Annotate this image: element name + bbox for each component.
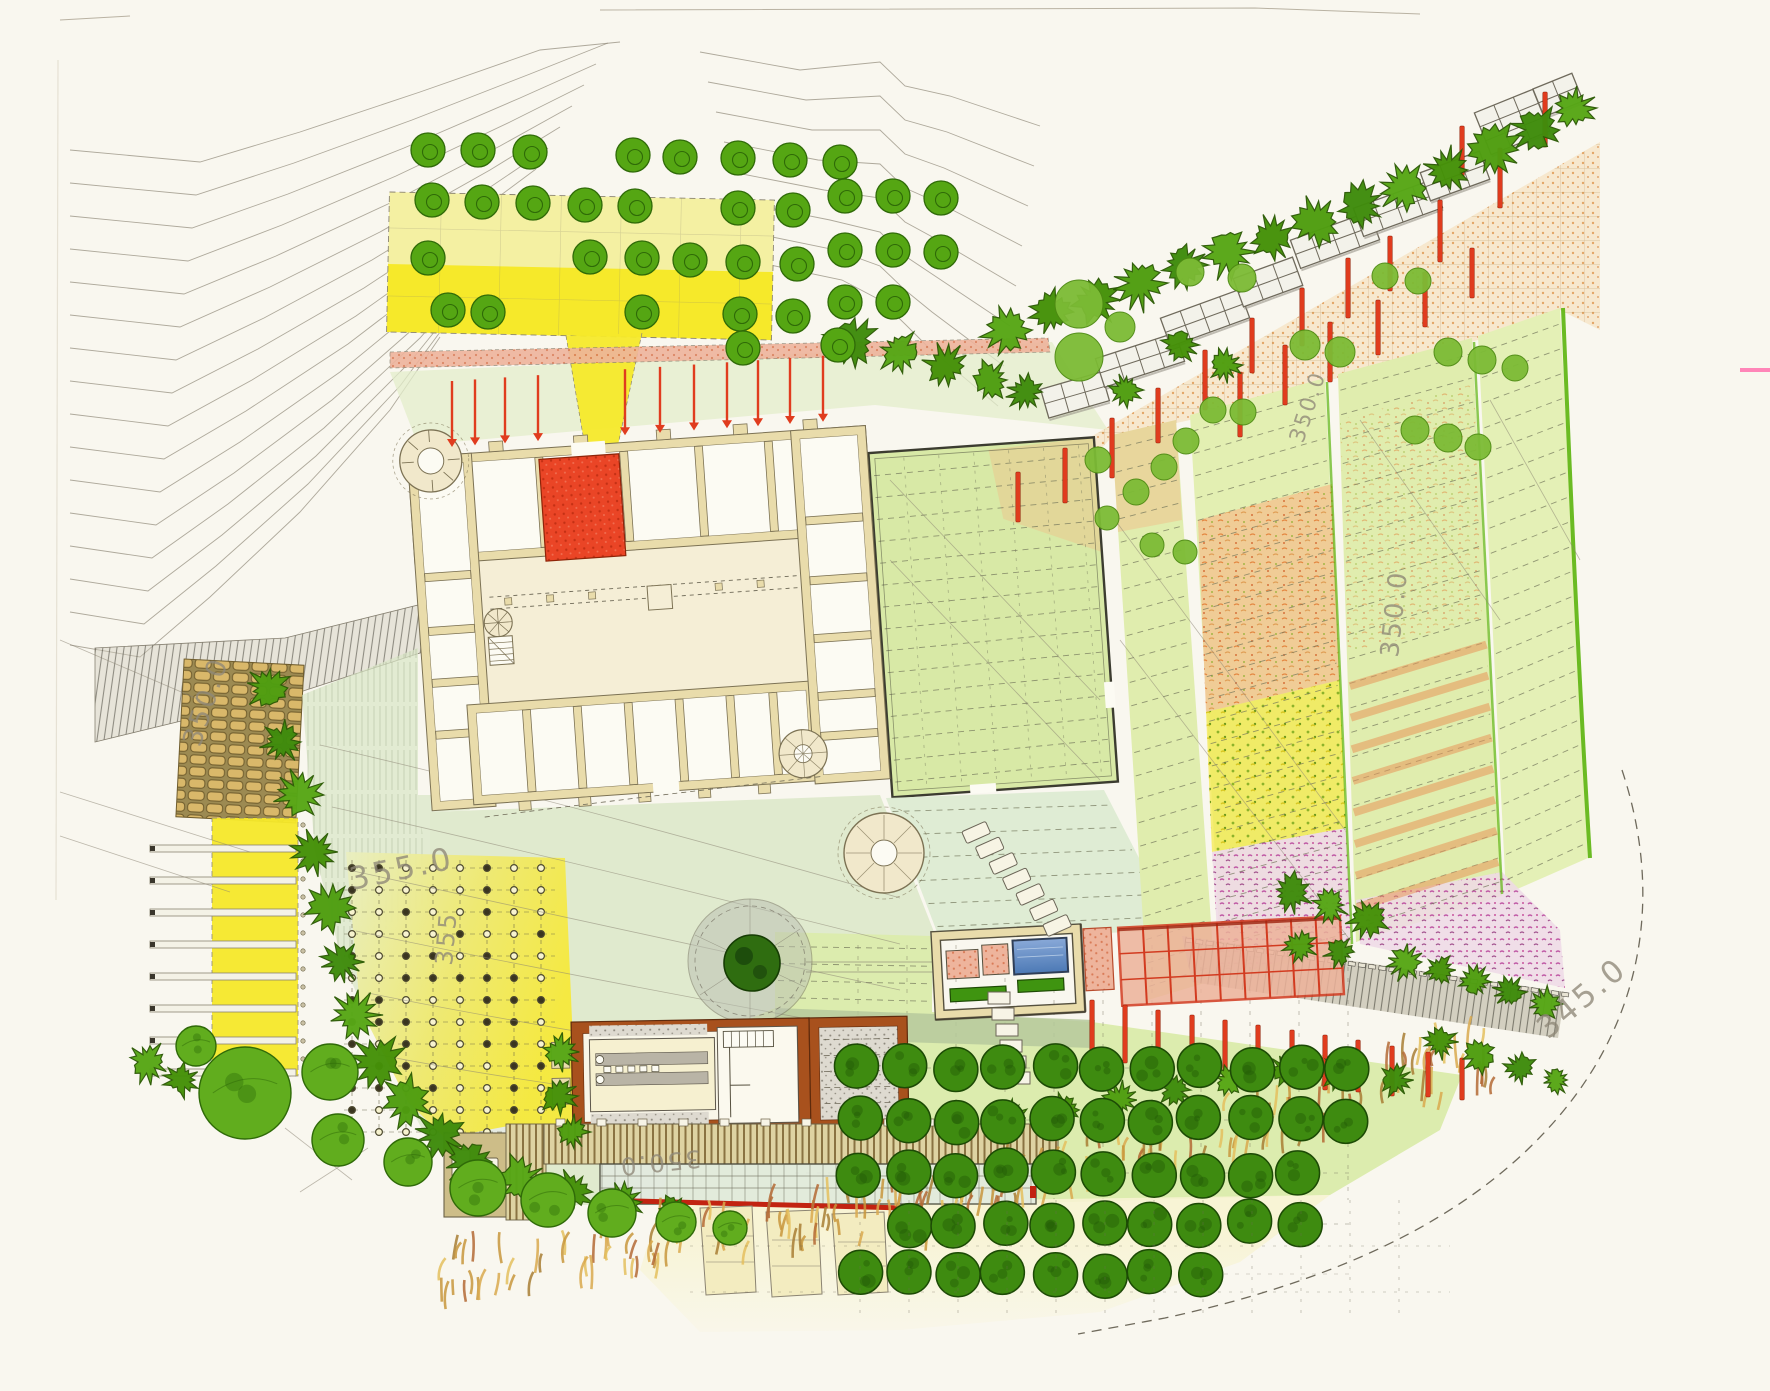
vine [538, 1019, 545, 1026]
vine [511, 1085, 518, 1092]
contour-label: 355 [429, 910, 463, 967]
tree [411, 241, 445, 275]
tree [1325, 1047, 1369, 1091]
vine [484, 865, 491, 872]
tree [821, 328, 855, 362]
tree [828, 179, 862, 213]
tree [471, 295, 505, 329]
tree [981, 1100, 1025, 1144]
tree [883, 1044, 927, 1088]
tree [1031, 1150, 1075, 1194]
vine [511, 865, 518, 872]
tree [1095, 506, 1119, 530]
site-plan-drawing: 350.0 355.0 355 350.0 350.0 345.0 350.0 [0, 0, 1770, 1391]
tree [887, 1150, 931, 1194]
vine [430, 997, 437, 1004]
tree [780, 247, 814, 281]
tree [461, 133, 495, 167]
vine [484, 1063, 491, 1070]
vine [457, 975, 464, 982]
tree [981, 1045, 1025, 1089]
vine [511, 1107, 518, 1114]
tree [1502, 355, 1528, 381]
walled-garden [868, 437, 1121, 799]
vine [430, 1085, 437, 1092]
tree [723, 297, 757, 331]
tree [1176, 258, 1204, 286]
tree [1080, 1098, 1124, 1142]
vine [511, 909, 518, 916]
red-post [1438, 200, 1443, 262]
red-post [1156, 388, 1161, 443]
courtyard-pavilion [647, 584, 673, 610]
tree [726, 245, 760, 279]
tree [1055, 333, 1103, 381]
tree [1173, 428, 1199, 454]
vine [511, 997, 518, 1004]
vine [484, 1041, 491, 1048]
vine [403, 887, 410, 894]
vine [403, 909, 410, 916]
south-gate [653, 780, 680, 794]
vine [484, 997, 491, 1004]
vine [457, 1063, 464, 1070]
tree [1434, 338, 1462, 366]
tree [415, 183, 449, 217]
vine [430, 1041, 437, 1048]
tree [465, 185, 499, 219]
vine [349, 1107, 356, 1114]
vine [403, 953, 410, 960]
vine [457, 1085, 464, 1092]
tree [1229, 1095, 1273, 1139]
tree [721, 141, 755, 175]
vine [376, 909, 383, 916]
vine [484, 975, 491, 982]
tree [1151, 454, 1177, 480]
tree [1178, 1043, 1222, 1087]
tree [888, 1204, 932, 1248]
vine [538, 887, 545, 894]
castle [390, 393, 891, 822]
vine [538, 975, 545, 982]
tree [934, 1154, 978, 1198]
vine [457, 997, 464, 1004]
tree [776, 299, 810, 333]
vine [538, 931, 545, 938]
vine [511, 1019, 518, 1026]
vine [457, 865, 464, 872]
vine [403, 1041, 410, 1048]
tree [1105, 312, 1135, 342]
tree [1434, 424, 1462, 452]
red-hall [539, 454, 626, 561]
tree [1230, 399, 1256, 425]
tree [411, 133, 445, 167]
vine [403, 975, 410, 982]
tree [876, 233, 910, 267]
red-post [1376, 300, 1381, 355]
vine [376, 953, 383, 960]
tree [1132, 1153, 1176, 1197]
red-post [1460, 1058, 1465, 1100]
tree [616, 138, 650, 172]
tree [513, 135, 547, 169]
vine [457, 887, 464, 894]
tree [1228, 264, 1256, 292]
vine [457, 1041, 464, 1048]
tree [876, 285, 910, 319]
tree [1290, 330, 1320, 360]
tree [1085, 447, 1111, 473]
ramp [766, 1210, 822, 1297]
red-pergola [1118, 916, 1344, 1006]
vine [484, 1019, 491, 1026]
tree [1128, 1100, 1172, 1144]
tree [1372, 263, 1398, 289]
tree [1140, 533, 1164, 557]
paved-terrace [946, 949, 979, 979]
tree [1401, 416, 1429, 444]
vine [457, 1019, 464, 1026]
vine [484, 887, 491, 894]
tree [1055, 280, 1103, 328]
vine [538, 953, 545, 960]
tree [1123, 479, 1149, 505]
tree [568, 188, 602, 222]
tree [663, 140, 697, 174]
tree [924, 235, 958, 269]
tree [839, 1250, 883, 1294]
vine [511, 1063, 518, 1070]
tree [618, 189, 652, 223]
tree [1173, 540, 1197, 564]
vine [403, 1063, 410, 1070]
vine [376, 975, 383, 982]
tree [1200, 397, 1226, 423]
tree [573, 240, 607, 274]
vine [538, 1063, 545, 1070]
vine [484, 931, 491, 938]
vine [538, 997, 545, 1004]
castle-courtyard [479, 539, 808, 704]
red-post [1346, 258, 1351, 318]
vine [403, 1129, 410, 1136]
vine [538, 1041, 545, 1048]
vine [349, 1041, 356, 1048]
tree [1405, 268, 1431, 294]
tree [1278, 1203, 1322, 1247]
vine [511, 931, 518, 938]
paved-terrace [982, 944, 1010, 975]
red-post [1063, 448, 1068, 503]
vine [376, 997, 383, 1004]
tree [984, 1201, 1028, 1245]
vine [511, 975, 518, 982]
red-post [1283, 345, 1288, 405]
tree [1127, 1250, 1171, 1294]
tree [924, 181, 958, 215]
tree [828, 233, 862, 267]
tree [721, 191, 755, 225]
vine [403, 931, 410, 938]
vine [430, 1019, 437, 1026]
tree [673, 243, 707, 277]
paved-slab [1083, 927, 1114, 990]
tree [1468, 346, 1496, 374]
tree [1325, 337, 1355, 367]
tree [773, 143, 807, 177]
vine [376, 1129, 383, 1136]
vine [484, 909, 491, 916]
tree [1465, 434, 1491, 460]
vine [511, 887, 518, 894]
red-post [1470, 248, 1475, 298]
tree [828, 285, 862, 319]
vine [376, 1019, 383, 1026]
tree [823, 145, 857, 179]
vine [403, 1019, 410, 1026]
vine [511, 1041, 518, 1048]
center-tree [724, 935, 780, 991]
vine [538, 865, 545, 872]
vine [511, 953, 518, 960]
tree [726, 331, 760, 365]
tree [431, 293, 465, 327]
garden-gate-south [970, 783, 997, 794]
vine [430, 1107, 437, 1114]
tree [876, 179, 910, 213]
tree [516, 186, 550, 220]
tree [625, 241, 659, 275]
red-post [1016, 472, 1021, 522]
vine [484, 1085, 491, 1092]
red-post [1123, 1005, 1128, 1063]
tree [625, 295, 659, 329]
red-post [1110, 418, 1115, 478]
garden-gate-east [1104, 682, 1116, 709]
vine [376, 1107, 383, 1114]
vine [457, 1107, 464, 1114]
vine [430, 975, 437, 982]
red-post [1090, 1000, 1095, 1055]
planter [1018, 978, 1065, 992]
site-plan-page: 350.0 355.0 355 350.0 350.0 345.0 350.0 [0, 0, 1770, 1391]
pink-registration-mark [1740, 368, 1770, 372]
red-post [1250, 318, 1255, 373]
tree [1079, 1047, 1123, 1091]
vine [349, 931, 356, 938]
tree [776, 193, 810, 227]
vine [484, 1107, 491, 1114]
tree [838, 1096, 882, 1140]
vine [538, 1085, 545, 1092]
tree [1177, 1203, 1221, 1247]
tree [1181, 1154, 1225, 1198]
vine [430, 1063, 437, 1070]
red-post [1426, 1052, 1431, 1097]
